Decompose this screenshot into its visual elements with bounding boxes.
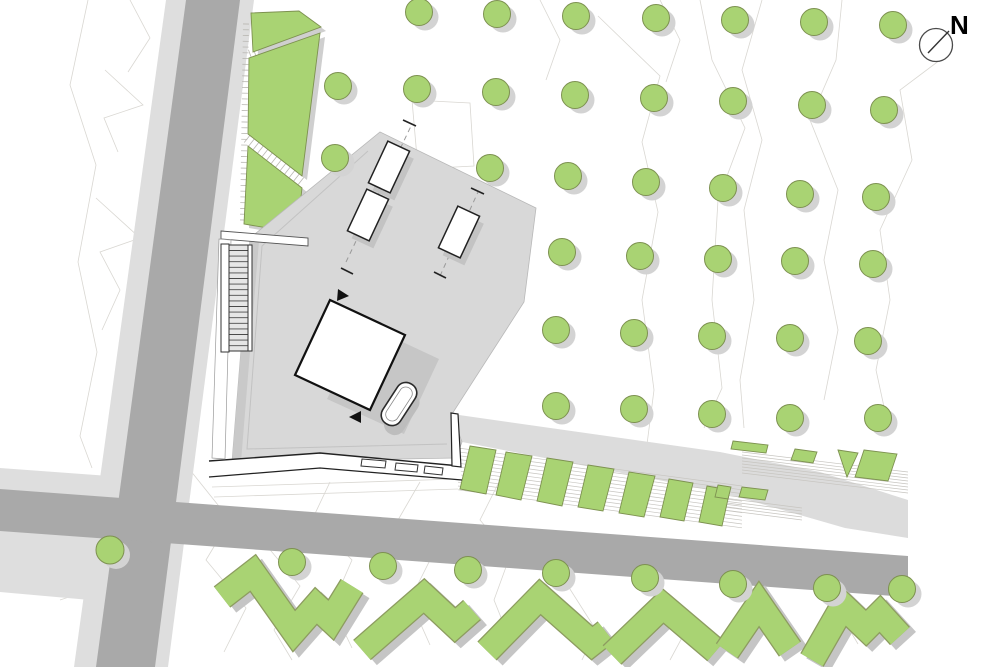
hatch-tick: [298, 177, 304, 184]
north-label: N: [950, 10, 969, 40]
tree: [325, 73, 352, 100]
tree: [279, 549, 306, 576]
terrace-bed: [537, 458, 573, 506]
hatch-tick: [294, 174, 300, 181]
tree: [455, 557, 482, 584]
hatch-tick: [267, 153, 273, 160]
terrace-bed: [619, 472, 655, 517]
tree: [777, 325, 804, 352]
tree: [710, 175, 737, 202]
tree: [627, 243, 654, 270]
terrace-bed: [496, 452, 532, 500]
tree: [621, 320, 648, 347]
tree: [632, 565, 659, 592]
tree: [641, 85, 668, 112]
terrace-bed: [578, 465, 614, 511]
pl: [190, 470, 246, 652]
tree: [406, 0, 433, 26]
tree: [543, 317, 570, 344]
stair-flight: [229, 245, 248, 351]
pl: [104, 70, 143, 152]
pl: [128, 0, 150, 72]
hatch-tick: [285, 167, 291, 174]
tree: [484, 1, 511, 28]
site-plan: N: [0, 0, 1000, 667]
tree: [705, 246, 732, 273]
hatch-tick: [249, 139, 255, 146]
tree: [722, 7, 749, 34]
tree: [549, 239, 576, 266]
hatch-tick: [276, 160, 282, 167]
tree: [96, 536, 124, 564]
north-arrow: N: [920, 10, 969, 62]
tree: [543, 393, 570, 420]
hatch-tick: [289, 170, 295, 177]
stair-rail: [221, 244, 229, 352]
site-plan-drawing: N: [0, 0, 1000, 667]
tree: [863, 184, 890, 211]
tree: [799, 92, 826, 119]
tree: [777, 405, 804, 432]
tree: [699, 323, 726, 350]
tree: [643, 5, 670, 32]
terrace-bed: [731, 441, 768, 453]
tree: [720, 88, 747, 115]
tree: [782, 248, 809, 275]
terrace-bed: [715, 485, 731, 499]
terrace-bed: [791, 449, 817, 463]
tree: [563, 3, 590, 30]
terrace-bed: [855, 450, 897, 481]
tree: [404, 76, 431, 103]
hatch-tick: [280, 163, 286, 170]
tree: [814, 575, 841, 602]
tree: [555, 163, 582, 190]
tree: [621, 396, 648, 423]
stairs: [221, 244, 252, 352]
pl: [540, 0, 560, 80]
chevron-building: [487, 597, 606, 651]
hatch-tick: [258, 146, 264, 153]
tree: [633, 169, 660, 196]
tree: [699, 401, 726, 428]
wall-step: [361, 459, 386, 468]
stair-rail: [248, 245, 252, 351]
wall-step: [395, 463, 418, 472]
tree: [871, 97, 898, 124]
pl: [598, 16, 660, 452]
tree: [720, 571, 747, 598]
tree: [889, 576, 916, 603]
pl: [740, 0, 762, 428]
hatch-tick: [271, 156, 277, 163]
tree: [787, 181, 814, 208]
chevron-building: [812, 606, 900, 660]
tree: [477, 155, 504, 182]
tree: [562, 82, 589, 109]
tree: [322, 145, 349, 172]
terrace-bed: [660, 479, 693, 521]
pl: [214, 489, 458, 497]
pl: [700, 0, 745, 428]
tree: [801, 9, 828, 36]
tree: [860, 251, 887, 278]
tree: [865, 405, 892, 432]
pl: [70, 0, 97, 468]
tree: [370, 553, 397, 580]
tree: [483, 79, 510, 106]
wall-step: [424, 466, 443, 475]
hatch-tick: [262, 149, 268, 156]
tree: [855, 328, 882, 355]
hatch-tick: [253, 142, 259, 149]
tree: [543, 560, 570, 587]
tree: [880, 12, 907, 39]
